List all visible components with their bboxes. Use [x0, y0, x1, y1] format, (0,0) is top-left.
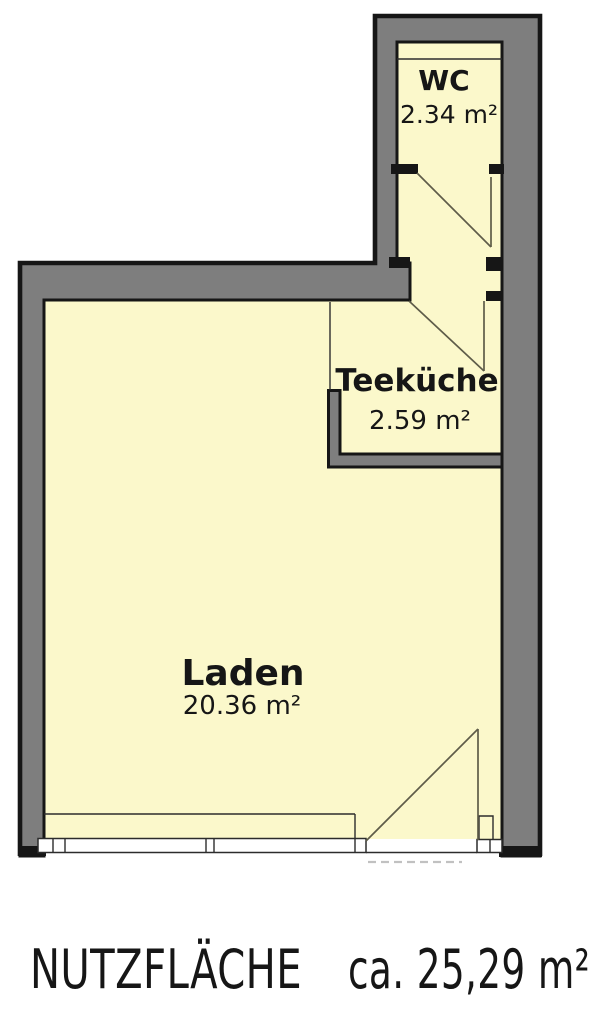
floor-plan: WC 2.34 m² Teeküche 2.59 m² Laden 20.36 …	[0, 0, 616, 1018]
right-wall-end-cap	[499, 846, 542, 857]
corridor-wall-cap	[389, 257, 410, 268]
teekueche-room-label: Teeküche	[335, 363, 498, 399]
laden-room-area: 20.36 m²	[183, 691, 301, 721]
wc-door-jamb-left	[391, 164, 418, 174]
shop-window-band	[38, 839, 366, 853]
wc-room-label: WC	[418, 64, 469, 97]
footer-value: ca. 25,29 m²	[348, 938, 590, 1001]
wc-room-area: 2.34 m²	[400, 100, 498, 129]
wc-door-jamb-right	[489, 164, 504, 174]
teekueche-door-jamb-upper	[486, 257, 503, 271]
teekueche-door-jamb-lower	[486, 291, 503, 301]
footer-label: NUTZFLÄCHE	[30, 938, 302, 1001]
laden-room-label: Laden	[181, 653, 304, 694]
teekueche-room-area: 2.59 m²	[369, 406, 471, 436]
floor-plan-page: WC 2.34 m² Teeküche 2.59 m² Laden 20.36 …	[0, 0, 616, 1018]
